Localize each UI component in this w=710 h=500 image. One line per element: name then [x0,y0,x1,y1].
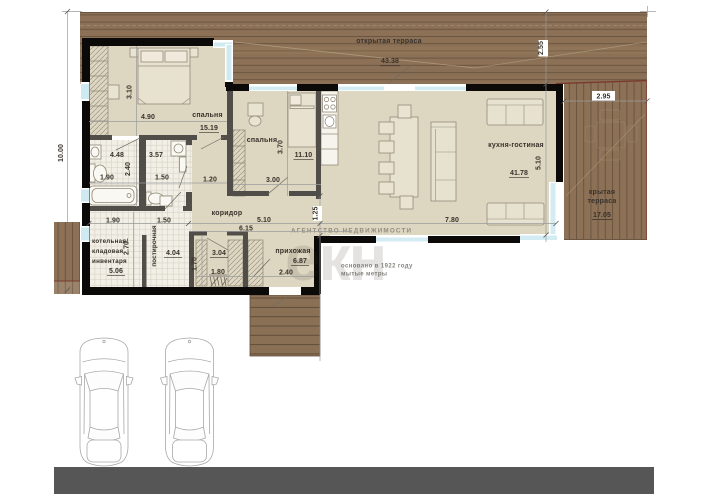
svg-text:15.19: 15.19 [200,125,218,132]
svg-text:3.70: 3.70 [278,140,285,154]
svg-text:коридор: коридор [212,210,243,217]
svg-text:3.57: 3.57 [149,152,163,159]
svg-text:терраса: терраса [587,198,616,205]
svg-text:спальня: спальня [247,137,277,144]
svg-text:1.90: 1.90 [100,175,114,182]
svg-text:5.10: 5.10 [536,156,543,170]
svg-text:1.25: 1.25 [313,206,320,220]
svg-text:2.55: 2.55 [538,41,545,55]
svg-text:спальня: спальня [192,112,222,119]
svg-text:5.06: 5.06 [109,268,123,275]
svg-text:4.90: 4.90 [141,114,155,121]
svg-text:5.10: 5.10 [257,217,271,224]
svg-text:мытые метры: мытые метры [341,272,387,278]
svg-text:3.00: 3.00 [266,177,280,184]
svg-text:кухня-гостиная: кухня-гостиная [488,142,544,149]
svg-text:2.95: 2.95 [596,94,610,101]
svg-text:основано в 1922 году: основано в 1922 году [341,264,413,270]
svg-text:инвентаря: инвентаря [92,258,127,265]
svg-text:1.80: 1.80 [211,269,225,276]
svg-text:1.50: 1.50 [155,175,169,182]
svg-text:10.00: 10.00 [58,144,65,162]
svg-text:4.04: 4.04 [166,250,180,257]
svg-text:1.70: 1.70 [192,257,199,271]
svg-text:3.10: 3.10 [127,85,134,99]
svg-text:крытая: крытая [589,189,615,196]
svg-text:открытая терраса: открытая терраса [356,38,421,45]
svg-text:17.05: 17.05 [593,212,611,219]
svg-text:3.04: 3.04 [212,250,226,257]
svg-text:кладовая: кладовая [92,248,124,255]
svg-text:котельная/: котельная/ [92,238,128,245]
svg-text:прихожая: прихожая [275,248,310,255]
svg-text:7.80: 7.80 [445,217,459,224]
svg-text:1.20: 1.20 [203,177,217,184]
svg-text:постирочная: постирочная [151,225,158,267]
svg-text:4.48: 4.48 [110,152,124,159]
svg-text:1.50: 1.50 [157,218,171,225]
svg-text:2.40: 2.40 [125,162,132,176]
svg-text:43.38: 43.38 [381,58,399,65]
svg-text:6.15: 6.15 [239,226,253,233]
svg-text:1.90: 1.90 [106,218,120,225]
svg-text:6.87: 6.87 [293,258,307,265]
svg-text:2.40: 2.40 [279,270,293,277]
svg-text:41.78: 41.78 [510,170,528,177]
svg-text:11.10: 11.10 [295,152,313,159]
